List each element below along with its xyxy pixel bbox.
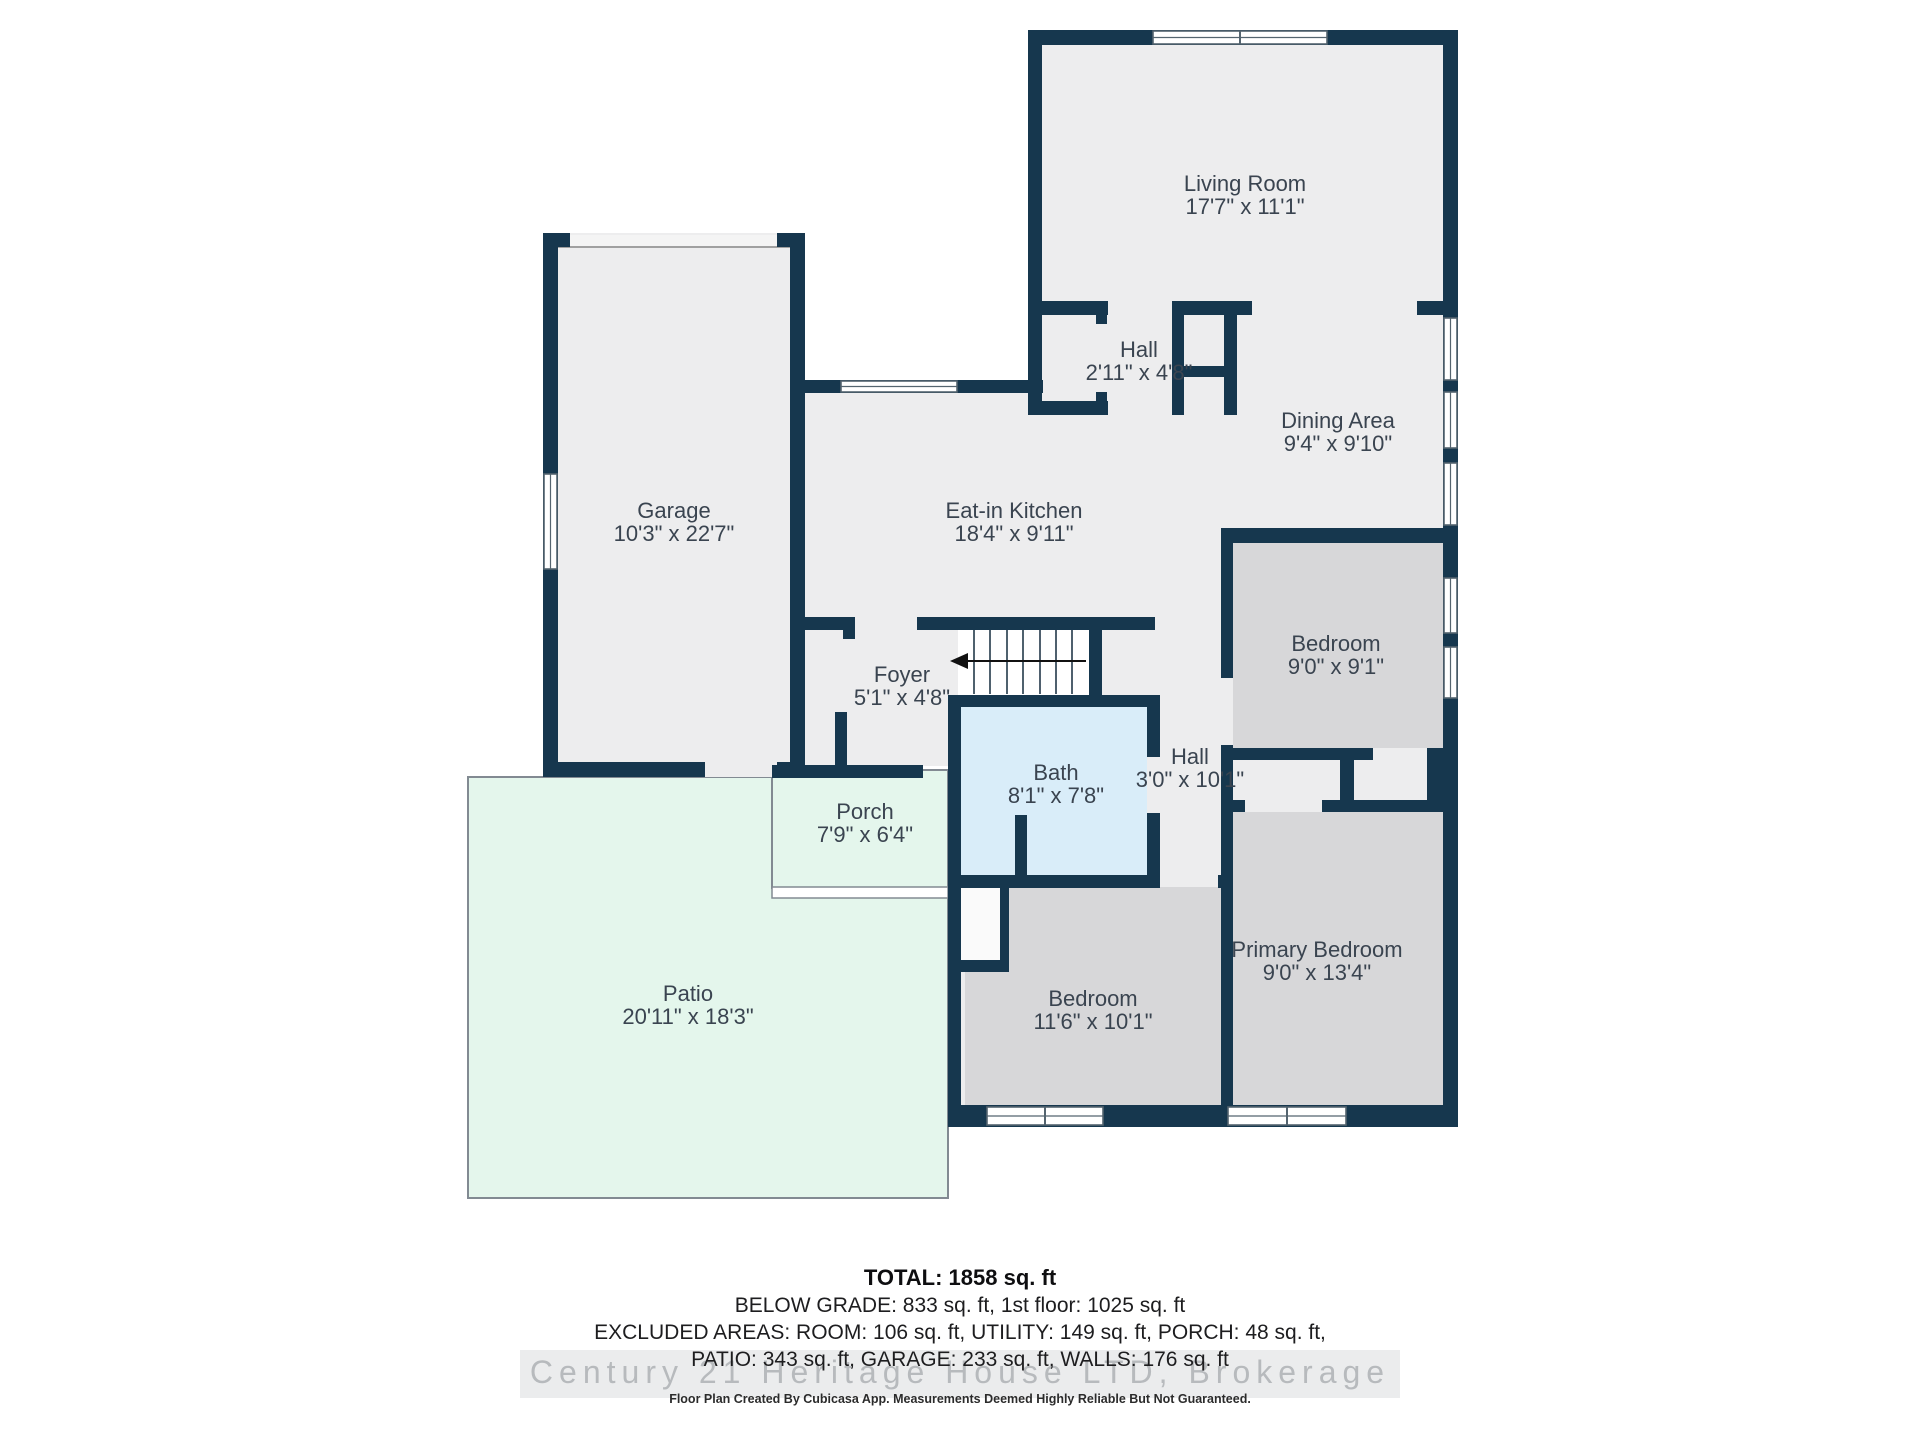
room-dims: 9'0" x 13'4" xyxy=(1231,961,1402,984)
excluded-areas-text: EXCLUDED AREAS: ROOM: 106 sq. ft, UTILIT… xyxy=(0,1321,1920,1345)
window-icon xyxy=(1228,1107,1346,1125)
wall-segment xyxy=(1417,301,1458,315)
room-dims: 11'6" x 10'1" xyxy=(1033,1010,1152,1033)
room-name: Hall xyxy=(1136,745,1244,768)
wall-segment xyxy=(543,762,705,777)
room-dims: 10'3" x 22'7" xyxy=(614,522,735,545)
wall-segment xyxy=(960,960,1009,972)
room-dims: 7'9" x 6'4" xyxy=(817,823,913,846)
room-name: Foyer xyxy=(854,663,950,686)
excluded-areas-text-2: PATIO: 343 sq. ft, GARAGE: 233 sq. ft, W… xyxy=(0,1348,1920,1372)
room-name: Primary Bedroom xyxy=(1231,938,1402,961)
room-name: Living Room xyxy=(1184,172,1306,195)
wall-segment xyxy=(1000,887,1009,960)
room-name: Patio xyxy=(622,982,753,1005)
window-icon xyxy=(1153,31,1327,44)
window-icon xyxy=(987,1107,1103,1125)
room-name: Garage xyxy=(614,499,735,522)
wall-segment xyxy=(1096,315,1107,324)
wall-segment xyxy=(803,617,855,630)
room-label-bath: Bath 8'1" x 7'8" xyxy=(1008,761,1104,807)
wall-segment xyxy=(1028,301,1108,315)
room-name: Bath xyxy=(1008,761,1104,784)
window-icon xyxy=(1444,647,1457,698)
wall-segment xyxy=(1015,815,1027,875)
room-name: Bedroom xyxy=(1288,632,1384,655)
window-icon xyxy=(1444,463,1457,525)
wall-segment xyxy=(772,765,923,778)
room-name: Eat-in Kitchen xyxy=(946,499,1083,522)
wall-segment xyxy=(1340,748,1354,812)
wall-segment xyxy=(1096,392,1107,401)
floorplan-canvas xyxy=(0,0,1920,1440)
room-label-garage: Garage 10'3" x 22'7" xyxy=(614,499,735,545)
window-icon xyxy=(1444,578,1457,633)
wall-segment xyxy=(835,712,847,765)
window-icon xyxy=(1444,392,1457,448)
total-area-text: TOTAL: 1858 sq. ft xyxy=(0,1265,1920,1291)
wall-segment xyxy=(917,617,1155,630)
wall-segment xyxy=(1322,800,1340,812)
room-label-hall-upper: Hall 2'11" x 4'8" xyxy=(1086,338,1193,384)
window-icon xyxy=(544,474,557,569)
wall-segment xyxy=(1224,301,1237,415)
room-name: Bedroom xyxy=(1033,987,1152,1010)
room-label-living-room: Living Room 17'7" x 11'1" xyxy=(1184,172,1306,218)
wall-segment xyxy=(1221,888,1233,1105)
room-dims: 17'7" x 11'1" xyxy=(1184,195,1306,218)
wall-segment xyxy=(1028,401,1108,415)
wall-segment xyxy=(1147,813,1160,875)
disclaimer-text: Floor Plan Created By Cubicasa App. Meas… xyxy=(0,1392,1920,1406)
wall-segment xyxy=(1233,800,1245,812)
wall-segment xyxy=(948,695,1160,707)
room-label-primary-bedroom: Primary Bedroom 9'0" x 13'4" xyxy=(1231,938,1402,984)
room-label-bedroom: Bedroom 9'0" x 9'1" xyxy=(1288,632,1384,678)
room-dims: 2'11" x 4'8" xyxy=(1086,361,1193,384)
room-dims: 18'4" x 9'11" xyxy=(946,522,1083,545)
room-label-dining-area: Dining Area 9'4" x 9'10" xyxy=(1281,409,1395,455)
porch-step xyxy=(772,887,948,898)
room-dims: 9'4" x 9'10" xyxy=(1281,432,1395,455)
wall-segment xyxy=(1028,30,1042,415)
wall-segment xyxy=(1089,629,1102,695)
room-label-foyer: Foyer 5'1" x 4'8" xyxy=(854,663,950,709)
wall-segment xyxy=(948,695,961,1127)
below-grade-text: BELOW GRADE: 833 sq. ft, 1st floor: 1025… xyxy=(0,1294,1920,1318)
room-dims: 3'0" x 10'1" xyxy=(1136,768,1244,791)
room-dims: 20'11" x 18'3" xyxy=(622,1005,753,1028)
floorplan-page: Living Room 17'7" x 11'1" Hall 2'11" x 4… xyxy=(0,0,1920,1440)
wall-segment xyxy=(948,875,1160,888)
wall-segment xyxy=(1221,528,1458,543)
window-icon xyxy=(841,381,957,392)
room-name: Hall xyxy=(1086,338,1193,361)
room-name: Porch xyxy=(817,800,913,823)
window-icon xyxy=(1444,318,1457,380)
wall-segment xyxy=(543,233,570,247)
room-label-porch: Porch 7'9" x 6'4" xyxy=(817,800,913,846)
wall-segment xyxy=(1221,528,1233,678)
room-name: Dining Area xyxy=(1281,409,1395,432)
wall-segment xyxy=(790,233,805,778)
room-dims: 5'1" x 4'8" xyxy=(854,686,950,709)
room-label-bedroom2: Bedroom 11'6" x 10'1" xyxy=(1033,987,1152,1033)
room-label-patio: Patio 20'11" x 18'3" xyxy=(622,982,753,1028)
room-dims: 8'1" x 7'8" xyxy=(1008,784,1104,807)
room-dims: 9'0" x 9'1" xyxy=(1288,655,1384,678)
room-label-hall: Hall 3'0" x 10'1" xyxy=(1136,745,1244,791)
wall-segment xyxy=(1354,800,1443,812)
room-label-eat-in-kitchen: Eat-in Kitchen 18'4" x 9'11" xyxy=(946,499,1083,545)
wall-segment xyxy=(843,630,855,639)
